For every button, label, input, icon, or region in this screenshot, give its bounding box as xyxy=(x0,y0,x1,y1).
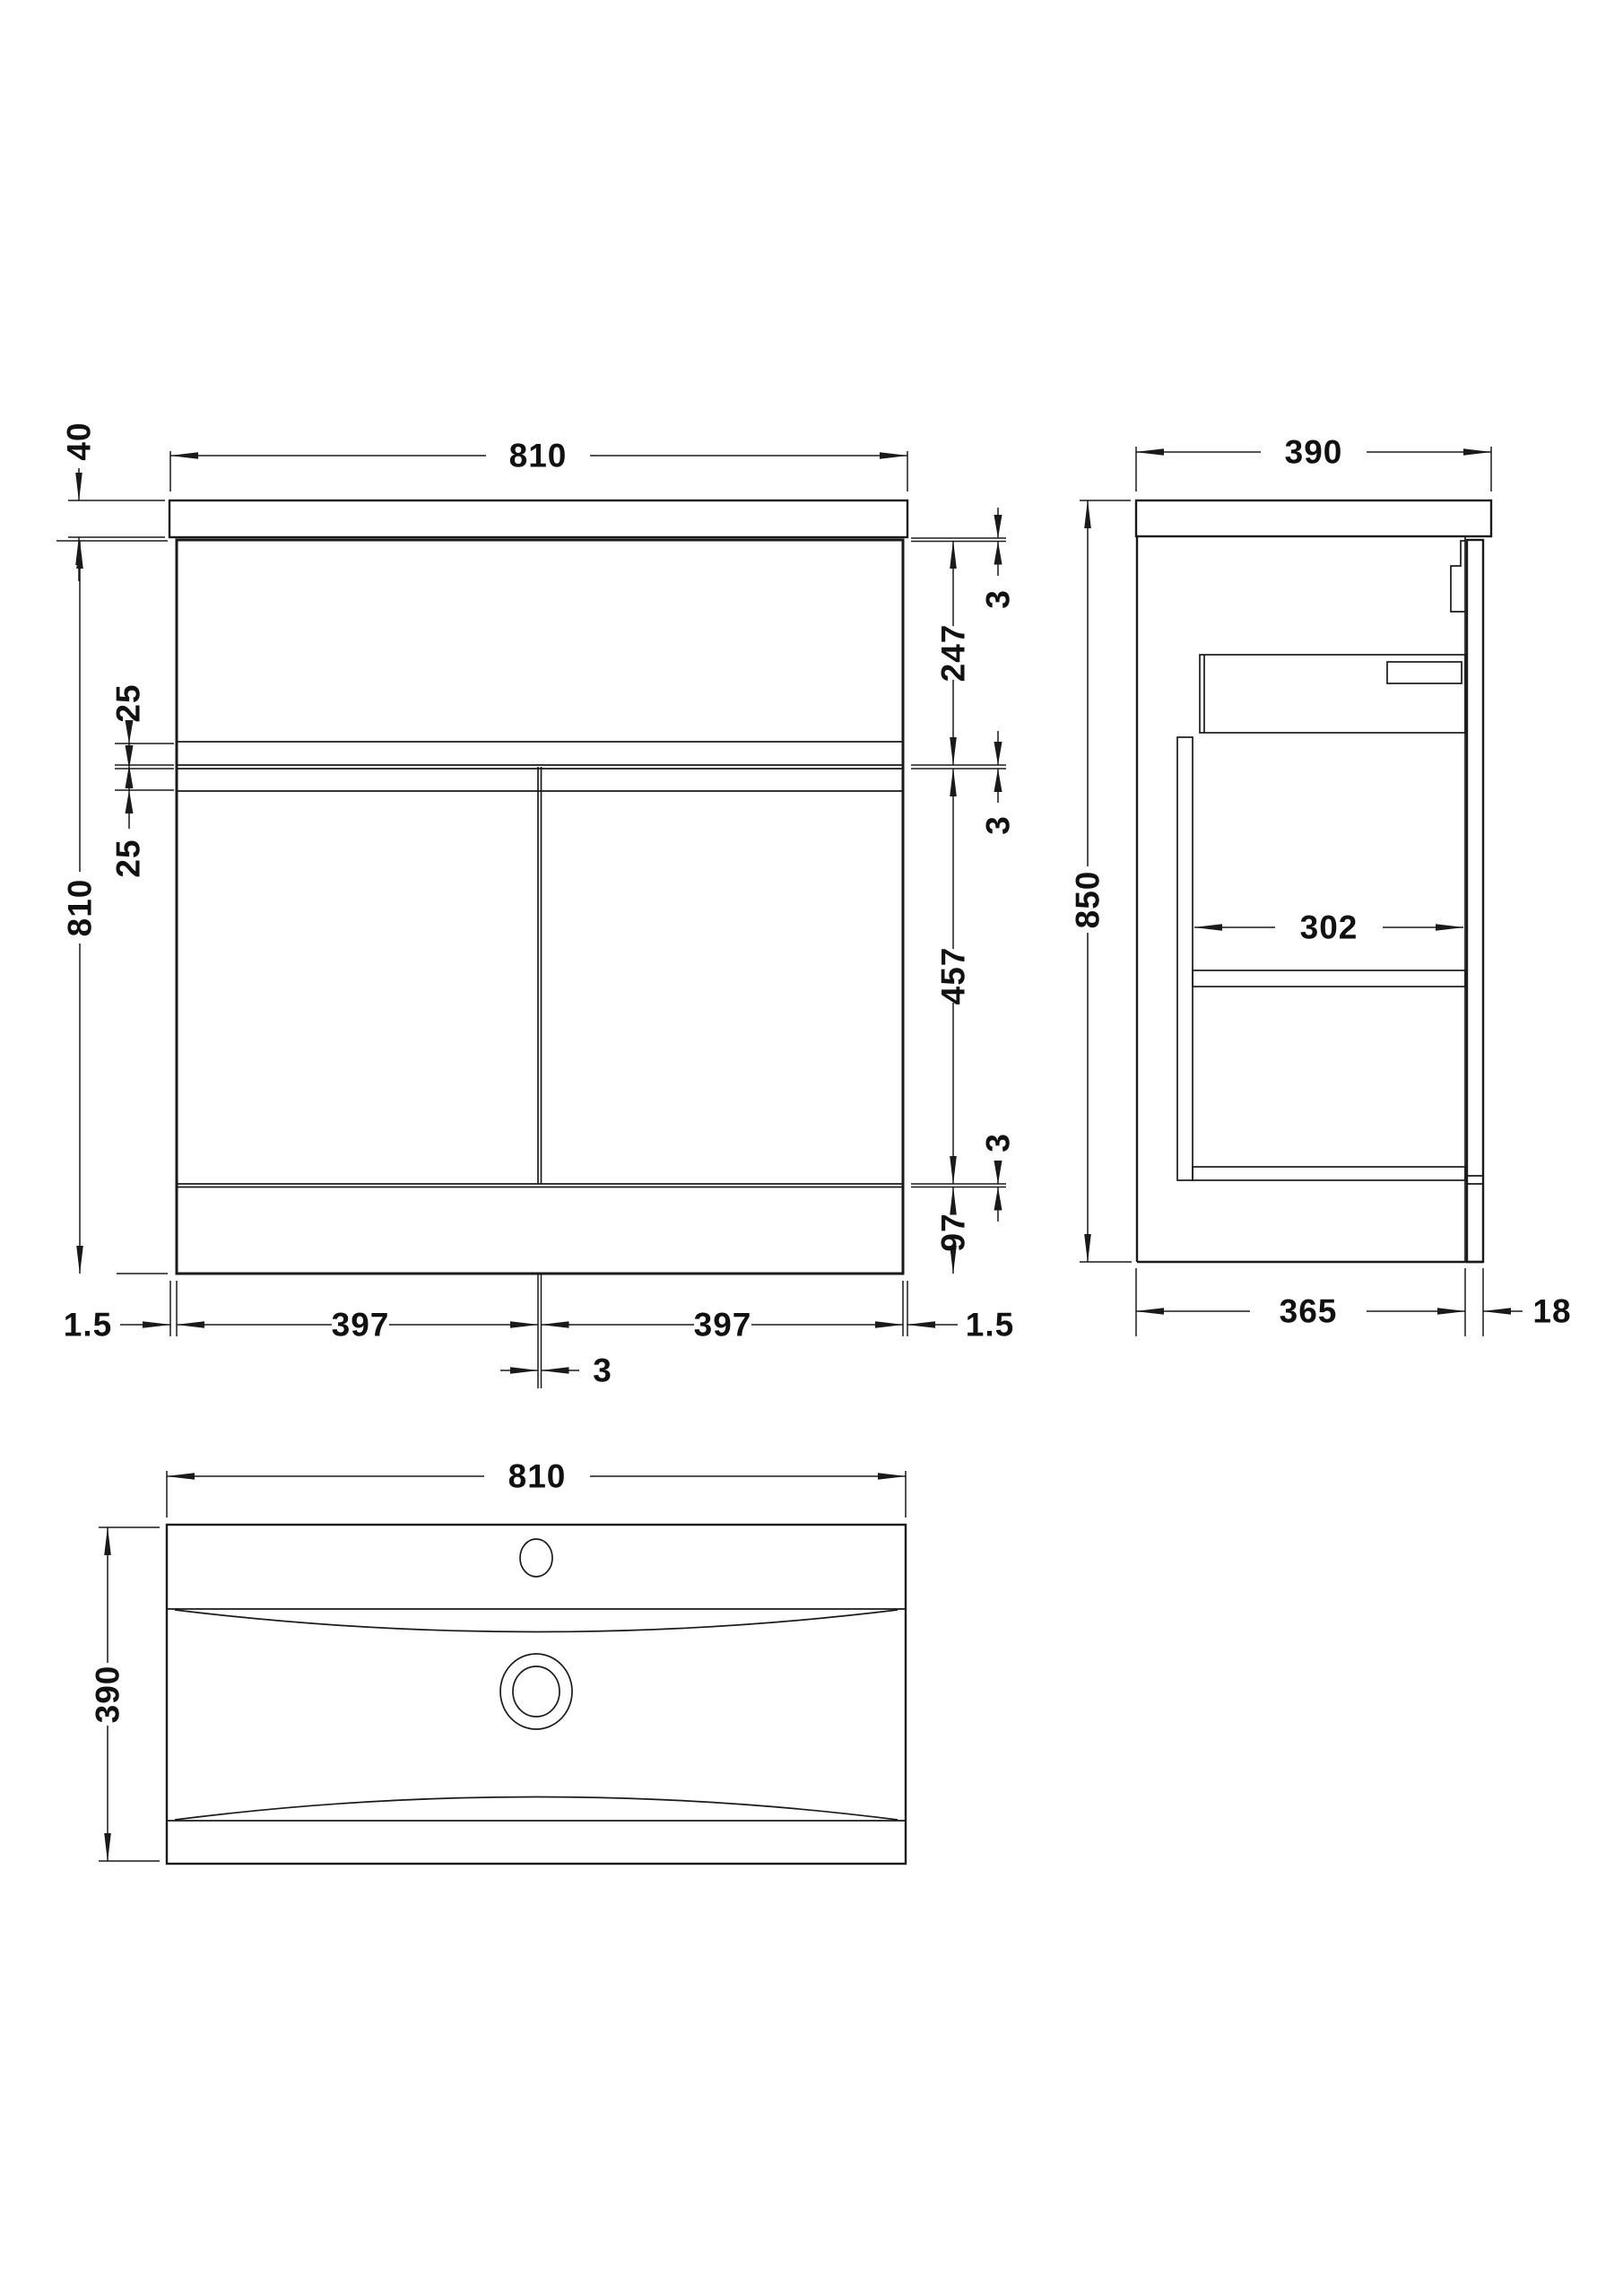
arrowhead-up xyxy=(994,542,1002,565)
drawing-sheet: 810 40 810 25 25 xyxy=(0,0,1623,2296)
dim-label-door-width-right: 397 xyxy=(694,1307,752,1344)
arrowhead-down xyxy=(994,1161,1002,1184)
dim-label-plinth: 97 xyxy=(935,1213,972,1251)
arrowhead-down xyxy=(126,720,134,744)
dim-label-door-gap: 3 xyxy=(593,1352,612,1389)
front-dim-gap-top: 3 xyxy=(980,508,1017,609)
front-dim-door-gap: 3 xyxy=(500,1274,612,1389)
dim-label-margin-left: 1.5 xyxy=(64,1307,112,1344)
dim-label-gap-top: 3 xyxy=(980,589,1017,609)
front-cabinet-outline xyxy=(177,540,903,1274)
arrowhead-up xyxy=(994,1187,1002,1211)
side-drawer-runner xyxy=(1387,662,1462,683)
side-dim-bottom-row: 365 18 xyxy=(1136,1268,1572,1336)
dim-label-door-thickness: 18 xyxy=(1532,1293,1571,1330)
front-dim-door-height: 457 xyxy=(935,769,972,1184)
plan-rear-rim-curve xyxy=(175,1797,898,1821)
plan-view xyxy=(167,1525,906,1864)
front-dim-offsets: 25 25 xyxy=(110,683,175,877)
side-view xyxy=(1136,500,1491,1262)
front-dim-cabinet-height: 810 xyxy=(56,541,168,1274)
plan-dim-width: 810 xyxy=(167,1458,906,1518)
front-dim-drawer-front: 247 xyxy=(935,541,972,765)
dim-label-total-height: 850 xyxy=(1070,871,1107,929)
dim-label-basin-depth: 390 xyxy=(90,1665,126,1724)
plan-tap-hole xyxy=(520,1539,552,1577)
dim-label-depth: 390 xyxy=(1285,434,1343,471)
dim-label-offset-lower: 25 xyxy=(110,839,147,877)
front-dim-bottom-row: 1.5 397 397 1.5 xyxy=(64,1281,1014,1344)
arrowhead-up xyxy=(126,790,134,813)
dim-label-gap-lower: 3 xyxy=(980,1133,1017,1152)
arrowhead-down xyxy=(994,515,1002,538)
dim-label-internal-depth: 302 xyxy=(1300,909,1358,946)
dim-label-counter-width: 810 xyxy=(509,438,568,474)
side-back-panel xyxy=(1177,737,1193,1180)
side-door-panel xyxy=(1467,540,1483,1262)
dim-label-drawer-front: 247 xyxy=(935,624,972,683)
dim-label-carcass-depth: 365 xyxy=(1280,1293,1338,1330)
plan-front-rim-curve xyxy=(175,1610,898,1632)
dim-label-counter-thickness: 40 xyxy=(61,422,98,460)
plan-drain-outer-ring xyxy=(500,1654,572,1729)
dim-label-margin-right: 1.5 xyxy=(966,1307,1014,1344)
side-bottom-panel xyxy=(1193,1167,1465,1180)
dim-label-offset-upper: 25 xyxy=(110,683,147,722)
side-dim-total-height: 850 xyxy=(1070,500,1133,1262)
arrowhead-down xyxy=(994,742,1002,765)
side-dim-depth: 390 xyxy=(1136,434,1491,492)
side-countertop xyxy=(1136,500,1491,536)
side-drawer-box xyxy=(1200,655,1465,733)
vanity-technical-drawing: 810 40 810 25 25 xyxy=(0,0,1623,2296)
plan-dim-depth: 390 xyxy=(90,1527,161,1861)
side-dim-internal-depth: 302 xyxy=(1194,909,1463,946)
dim-label-basin-width: 810 xyxy=(508,1458,567,1495)
arrowhead-up xyxy=(994,769,1002,792)
plan-basin-outline xyxy=(167,1525,906,1864)
front-dim-counter-thickness: 40 xyxy=(61,422,166,581)
front-dim-gap-middle: 3 xyxy=(980,731,1017,835)
front-countertop xyxy=(169,500,907,537)
front-dim-gap-lower: 3 xyxy=(980,1133,1017,1222)
dim-label-door-height: 457 xyxy=(935,947,972,1005)
plan-drain-inner-ring xyxy=(513,1666,560,1717)
dim-label-door-width-left: 397 xyxy=(332,1307,390,1344)
dim-label-cabinet-height: 810 xyxy=(62,879,99,937)
front-view xyxy=(169,500,907,1274)
side-hinge-bracket xyxy=(1451,541,1465,612)
dim-label-gap-middle: 3 xyxy=(980,815,1017,835)
front-dim-plinth: 97 xyxy=(935,1187,972,1274)
side-shelf xyxy=(1193,970,1465,987)
front-dim-counter-width: 810 xyxy=(170,438,907,492)
